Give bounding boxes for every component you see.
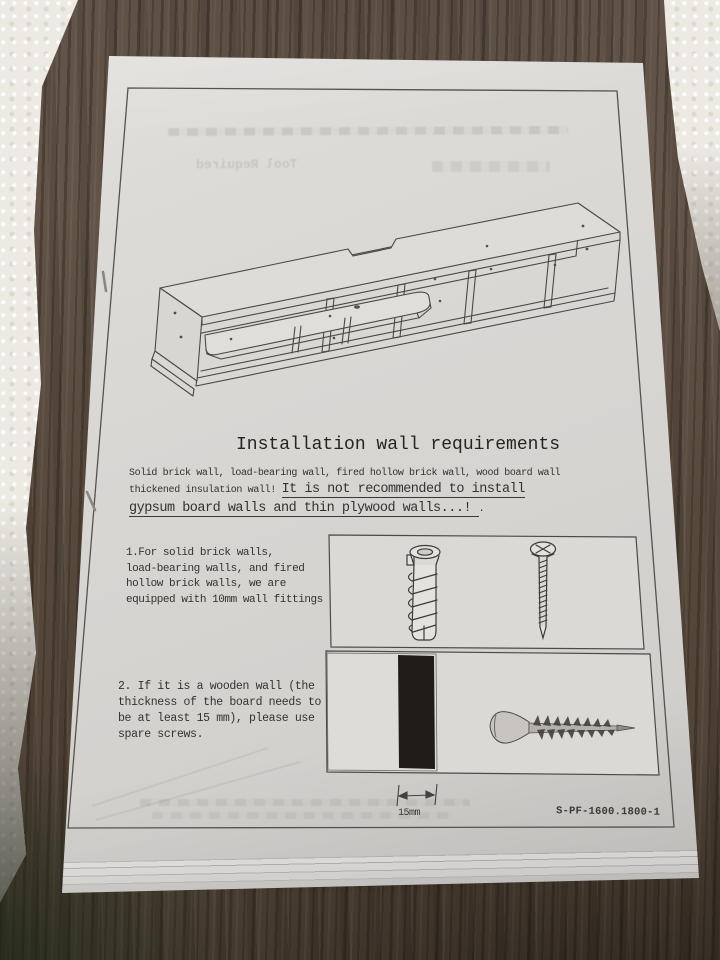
- intro-line-3: gypsum board walls and thin plywood wall…: [129, 499, 594, 518]
- manual-page: Tool Required: [0, 0, 720, 960]
- step-1-text: 1.For solid brick walls, load-bearing wa…: [126, 546, 323, 608]
- shelf-illustration: [151, 203, 620, 396]
- model-number: S-PF-1600.1800-1: [556, 805, 660, 818]
- intro-line-2: thickened insulation wall! It is not rec…: [129, 480, 594, 499]
- photo-scene: Tool Required: [0, 0, 720, 960]
- intro-paragraph: Solid brick wall, load-bearing wall, fir…: [129, 467, 594, 518]
- wood-board-swatch: [398, 655, 435, 769]
- intro-line-1: Solid brick wall, load-bearing wall, fir…: [129, 467, 594, 480]
- intro-line-3-underlined: gypsum board walls and thin plywood wall…: [129, 501, 479, 517]
- hardware-box-1: [329, 535, 644, 649]
- ghost-diagram-lines: [92, 748, 300, 820]
- step-2-text: 2. If it is a wooden wall (the thickness…: [118, 679, 321, 743]
- dimension-label: 15mm: [398, 808, 420, 819]
- intro-line-2-plain: thickened insulation wall!: [129, 485, 282, 496]
- intro-line-3-tail: .: [479, 504, 485, 515]
- intro-line-2-underlined: It is not recommended to install: [282, 482, 525, 498]
- dimension-arrow: [397, 784, 437, 806]
- page-title: Installation wall requirements: [236, 432, 560, 458]
